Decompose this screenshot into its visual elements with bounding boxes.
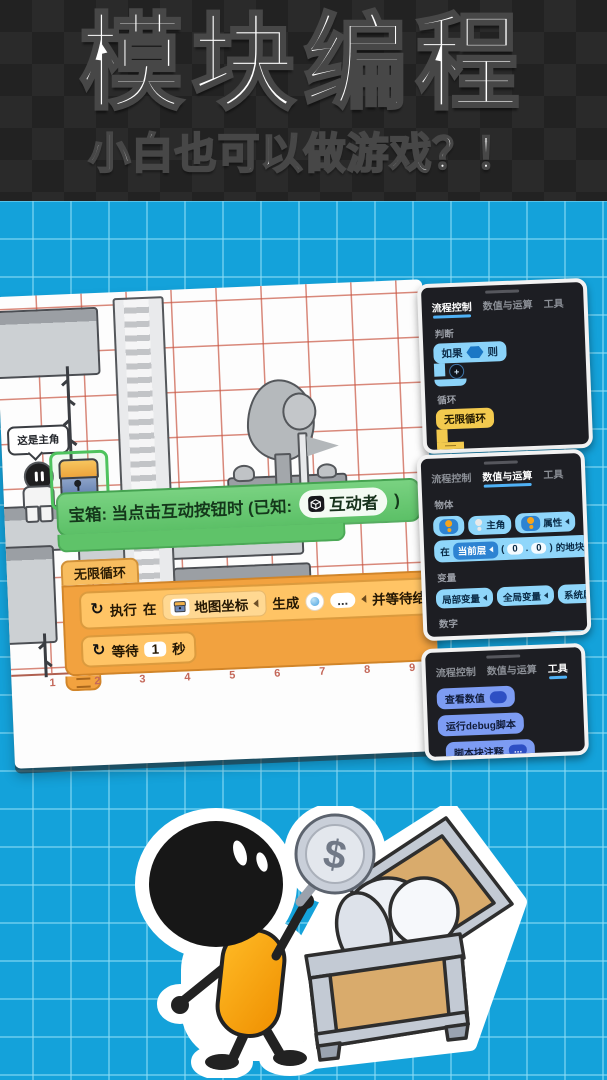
at-label: 在 xyxy=(142,598,156,619)
mascot-and-chest-sticker: $ xyxy=(128,806,528,1078)
dropdown-icon[interactable] xyxy=(565,518,569,524)
wait-value-pill[interactable]: 1 xyxy=(144,641,166,657)
section-variable: 变量 xyxy=(437,565,575,584)
protagonist-block[interactable]: 主角 xyxy=(468,514,512,535)
object-block[interactable] xyxy=(433,516,465,537)
event-block-suffix: ) xyxy=(394,491,400,510)
spawn-label: 生成 xyxy=(272,592,300,613)
condition-slot-icon[interactable] xyxy=(466,346,483,359)
panel-tools: 流程控制 数值与运算 工具 查看数值 运行debug脚本 脚本块注释... xyxy=(421,643,589,761)
platform-tile xyxy=(2,545,58,645)
system-attribute-block[interactable]: 系统属性 xyxy=(558,583,592,604)
character-leg xyxy=(39,505,54,523)
tab-flow-control[interactable]: 流程控制 xyxy=(431,469,472,486)
remainder-block[interactable]: 7/3的余数 xyxy=(544,628,591,641)
page-title: 模块编程 xyxy=(79,8,527,120)
tab-tools[interactable]: 工具 xyxy=(543,295,564,311)
vine-icon xyxy=(37,633,53,678)
infinite-loop-block[interactable]: 无限循环 xyxy=(436,407,495,429)
app-store-screenshot: 模块编程 小白也可以做游戏？！ 这是主角 xyxy=(0,0,607,1080)
run-debug-block[interactable]: 运行debug脚本 xyxy=(437,712,524,736)
if-then-block[interactable]: 如果 则 xyxy=(433,341,506,364)
event-block-label: 宝箱: 当点击互动按钮时 (已知: xyxy=(68,493,292,526)
character-icon xyxy=(444,520,453,532)
chest-lid xyxy=(58,458,99,480)
spawn-target-slot[interactable] xyxy=(305,591,325,611)
wait-block[interactable]: ↻ 等待 1 秒 xyxy=(81,631,198,668)
map-coordinate-label: 地图坐标 xyxy=(194,594,249,616)
y-value[interactable]: 0 xyxy=(531,542,547,554)
value-slot[interactable] xyxy=(490,690,507,703)
axis-label: 1 xyxy=(47,677,57,689)
infinite-loop-label[interactable]: 无限循环 xyxy=(60,557,139,585)
tab-bar: 流程控制 数值与运算 工具 xyxy=(421,461,582,492)
tab-tools[interactable]: 工具 xyxy=(547,660,568,676)
tab-math[interactable]: 数值与运算 xyxy=(486,661,537,678)
interactor-label: 互动者 xyxy=(328,489,378,515)
panel-math: 流程控制 数值与运算 工具 物体 主角 属性 在 当前层 ( 0 . 0 ) xyxy=(416,449,591,641)
execute-label: 执行 xyxy=(109,599,137,620)
axis-label: 3 xyxy=(137,673,147,685)
tab-math[interactable]: 数值与运算 xyxy=(482,467,533,484)
section-number: 数字 xyxy=(439,611,577,630)
axis-label: 2 xyxy=(92,675,102,687)
speech-bubble-text: 这是主角 xyxy=(17,432,60,449)
axis-label: 7 xyxy=(317,666,327,678)
dropdown-icon[interactable] xyxy=(544,592,548,598)
add-branch-icon[interactable]: + xyxy=(449,364,465,380)
map-coordinate-pill[interactable]: 地图坐标 xyxy=(162,590,267,620)
addition-block[interactable]: 2+3 xyxy=(479,633,541,641)
platform-tile xyxy=(0,307,101,379)
axis-label: 5 xyxy=(227,669,237,681)
loop-body: ↻ 执行 在 地图坐标 生成 ... 并等待结束 xyxy=(61,569,441,677)
axis-label: 4 xyxy=(182,671,192,683)
tile-at-block[interactable]: 在 当前层 ( 0 . 0 ) 的地块 xyxy=(434,535,591,563)
tab-flow-control[interactable]: 流程控制 xyxy=(436,663,477,680)
wait-label: 等待 xyxy=(111,639,139,660)
game-editor-card: 这是主角 宝箱: 当点击互动按钮时 (已知: 互动者 ) xyxy=(0,279,442,768)
refresh-icon: ↻ xyxy=(90,602,104,619)
tab-tools[interactable]: 工具 xyxy=(543,466,564,482)
bush-icon xyxy=(233,464,256,482)
attribute-block[interactable]: 属性 xyxy=(515,511,576,533)
bush-icon xyxy=(317,463,338,479)
character-icon xyxy=(474,519,483,531)
axis-label: 8 xyxy=(362,664,372,676)
comment-block[interactable]: 脚本块注释... xyxy=(446,739,536,761)
number-literal-block[interactable]: 123 xyxy=(437,636,475,641)
tab-math[interactable]: 数值与运算 xyxy=(482,296,533,313)
view-value-block[interactable]: 查看数值 xyxy=(436,686,515,710)
tab-flow-control[interactable]: 流程控制 xyxy=(431,298,472,315)
loop-end-tab xyxy=(437,442,464,455)
page-subtitle: 小白也可以做游戏？！ xyxy=(88,120,518,181)
panel-flow-control: 流程控制 数值与运算 工具 判断 如果 则 + 循环 无限循环 循环 10 次 xyxy=(417,278,593,454)
character-leg xyxy=(25,505,40,523)
axis-label: 9 xyxy=(407,662,417,674)
chest-thumb-icon xyxy=(170,598,190,616)
dropdown-icon[interactable] xyxy=(483,594,487,600)
dropdown-icon[interactable] xyxy=(512,639,516,641)
character-icon xyxy=(526,517,535,529)
cube-icon xyxy=(308,496,325,513)
loop-block-assembly[interactable]: 无限循环 ↻ 执行 在 地图坐标 生成 ... xyxy=(60,544,441,691)
x-value[interactable]: 0 xyxy=(507,543,523,555)
dropdown-icon xyxy=(489,546,493,552)
dropdown-icon[interactable] xyxy=(361,595,366,603)
comment-dots[interactable]: ... xyxy=(509,744,528,756)
refresh-icon: ↻ xyxy=(92,643,106,660)
execute-block[interactable]: ↻ 执行 在 地图坐标 生成 ... 并等待结束 xyxy=(79,576,442,630)
section-loop: 循环 xyxy=(437,387,577,406)
ellipsis-pill[interactable]: ... xyxy=(330,592,355,608)
tab-bar: 流程控制 数值与运算 工具 xyxy=(421,290,584,321)
section-judge: 判断 xyxy=(434,321,574,340)
global-variable-block[interactable]: 全局变量 xyxy=(497,585,555,606)
dropdown-icon[interactable] xyxy=(253,599,258,607)
local-variable-block[interactable]: 局部变量 xyxy=(436,587,494,608)
layer-slot[interactable]: 当前层 xyxy=(452,541,498,560)
section-object: 物体 xyxy=(434,492,572,511)
interactor-pill[interactable]: 互动者 xyxy=(298,487,388,519)
wait-unit-label: 秒 xyxy=(172,637,186,658)
axis-label: 6 xyxy=(272,667,282,679)
header-banner: 模块编程 小白也可以做游戏？！ xyxy=(0,0,607,201)
